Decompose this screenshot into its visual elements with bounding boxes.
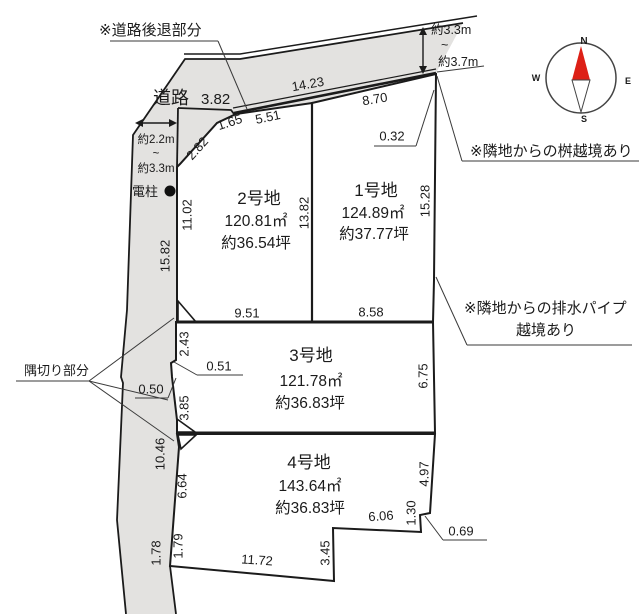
- plot-3-tsubo: 約36.83坪: [275, 394, 345, 412]
- plot-2-name: 2号地: [237, 189, 280, 208]
- dim-p3-left-upper: 2.43: [176, 331, 191, 356]
- compass-w-label: W: [532, 73, 541, 83]
- dim-0-32-leader: [416, 90, 434, 146]
- road-front-width: 3.82: [201, 91, 230, 108]
- drain-label-line1: ※隣地からの排水パイプ: [464, 300, 627, 317]
- road-right-edge-top: [177, 108, 178, 167]
- plot-2-labels: 2号地 120.81㎡ 約36.54坪: [221, 189, 291, 252]
- utility-pole-dot: [165, 186, 176, 197]
- left-width-min: 約2.2m: [137, 132, 174, 146]
- dim-road-jog: 0.50: [138, 381, 163, 396]
- dim-road-edge-lower: 10.46: [152, 438, 167, 471]
- corner-cut-plot2: [178, 301, 196, 322]
- road-label: 道路: [153, 88, 189, 108]
- plot-4-tsubo: 約36.83坪: [275, 499, 345, 517]
- dim-p4-notch: 0.69: [448, 523, 473, 538]
- plot-1-tsubo: 約37.77坪: [339, 225, 409, 243]
- left-width-max: 約3.3m: [137, 161, 174, 175]
- plot-1-labels: 1号地 124.89㎡ 約37.77坪: [339, 181, 409, 243]
- plot-4-name: 4号地: [287, 453, 330, 472]
- dim-p1-right: 15.28: [417, 185, 432, 218]
- compass-needle-south: [572, 80, 590, 112]
- plot-map-canvas: ※道路後退部分 ※隣地からの桝越境あり ※隣地からの排水パイプ 越境あり 隅切り…: [0, 0, 640, 614]
- drain-callout: ※隣地からの排水パイプ 越境あり: [436, 277, 632, 345]
- dim-p1-notch: 0.32: [379, 128, 404, 143]
- plot-4-labels: 4号地 143.64㎡ 約36.83坪: [275, 453, 345, 517]
- plot-1-area: 124.89㎡: [342, 204, 405, 222]
- dim-road-edge-bottom: 1.78: [148, 540, 163, 565]
- left-width-tilde: ~: [153, 148, 160, 160]
- dim-0-69-leader: [425, 516, 443, 540]
- top-width-min: 約3.3m: [431, 22, 471, 37]
- dim-p2-bottom: 9.51: [234, 305, 259, 320]
- plot-4-area: 143.64㎡: [279, 477, 342, 495]
- dim-p3-left-lower: 3.85: [176, 395, 191, 420]
- compass-s-label: S: [581, 114, 587, 124]
- dim-p4-step-v: 3.45: [317, 540, 332, 565]
- dim-p1-left: 13.82: [296, 197, 311, 230]
- drain-leader: [436, 277, 467, 345]
- dim-p4-notch-v: 1.30: [403, 500, 418, 525]
- dim-p3-right: 6.75: [415, 363, 430, 388]
- dim-p4-step-h: 6.06: [368, 508, 394, 525]
- plot-2-area: 120.81㎡: [225, 212, 288, 230]
- corner-cut-label: 隅切り部分: [24, 363, 89, 378]
- drain-label-line2: 越境あり: [516, 321, 576, 339]
- dim-p4-bottom: 11.72: [241, 551, 274, 568]
- plot-2-tsubo: 約36.54坪: [221, 234, 291, 252]
- compass-needle-north: [572, 46, 590, 80]
- masu-callout: ※隣地からの桝越境あり: [437, 76, 639, 161]
- compass-e-label: E: [625, 76, 631, 86]
- dim-p2-left: 11.02: [179, 199, 194, 231]
- dim-p1-bottom: 8.58: [358, 304, 383, 319]
- dim-p4-right: 4.97: [416, 461, 431, 486]
- land-plot-diagram: ※道路後退部分 ※隣地からの桝越境あり ※隣地からの排水パイプ 越境あり 隅切り…: [0, 0, 640, 614]
- dim-p3-jog: 0.51: [206, 358, 231, 373]
- dim-road-edge-upper: 15.82: [157, 240, 172, 273]
- plot-1-name: 1号地: [354, 181, 397, 200]
- dim-0-69-callout: 0.69: [425, 516, 487, 540]
- plot-3-name: 3号地: [289, 346, 332, 365]
- corner-cut-plot4: [178, 435, 196, 449]
- top-width-tilde: ~: [441, 38, 448, 52]
- dim-p4-left-lower: 1.79: [170, 533, 185, 558]
- setback-label: ※道路後退部分: [99, 22, 202, 39]
- dim-0-51-callout: 0.51: [174, 358, 243, 375]
- top-width-max: 約3.7m: [438, 54, 478, 69]
- compass: N W E S: [532, 36, 631, 124]
- dim-0-51-leader: [174, 362, 197, 375]
- compass-n-label: N: [580, 36, 587, 47]
- dim-p1-top: 8.70: [361, 90, 388, 109]
- dim-p4-left-upper: 6.64: [174, 473, 189, 498]
- utility-pole-label: 電柱: [132, 184, 158, 199]
- masu-leader: [437, 76, 462, 161]
- plot-3-area: 121.78㎡: [280, 372, 343, 390]
- masu-label: ※隣地からの桝越境あり: [470, 142, 633, 160]
- plot-3-labels: 3号地 121.78㎡ 約36.83坪: [275, 346, 345, 412]
